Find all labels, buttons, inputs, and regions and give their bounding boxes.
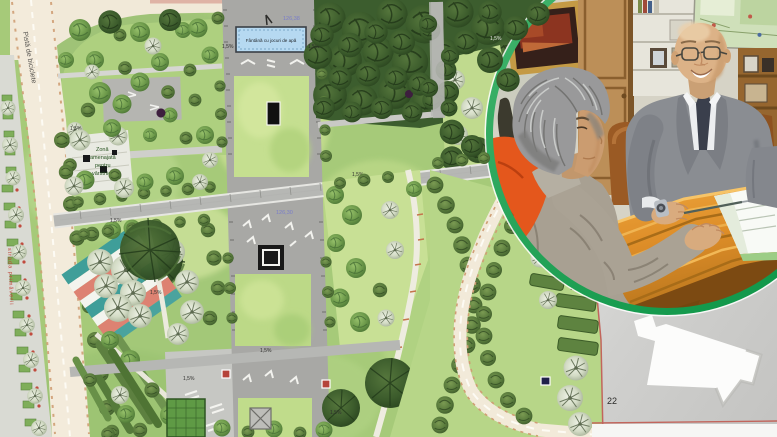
svg-text:Fântână cu jocuri de apă: Fântână cu jocuri de apă: [246, 38, 297, 43]
svg-text:126,38: 126,38: [283, 16, 300, 22]
svg-text:pentru: pentru: [95, 163, 111, 169]
svg-text:1,5%: 1,5%: [330, 410, 342, 416]
svg-text:1,5%: 1,5%: [110, 218, 122, 224]
svg-text:1,5%: 1,5%: [260, 348, 272, 354]
svg-text:1,5%: 1,5%: [490, 36, 502, 42]
svg-text:amenajată: amenajată: [90, 155, 117, 161]
svg-text:126,30: 126,30: [276, 210, 293, 216]
svg-text:22: 22: [607, 396, 617, 406]
svg-text:Zonă: Zonă: [96, 147, 109, 153]
svg-text:1,5%: 1,5%: [222, 44, 234, 50]
svg-text:1,5%: 1,5%: [183, 376, 195, 382]
svg-text:1,5%: 1,5%: [150, 290, 162, 296]
